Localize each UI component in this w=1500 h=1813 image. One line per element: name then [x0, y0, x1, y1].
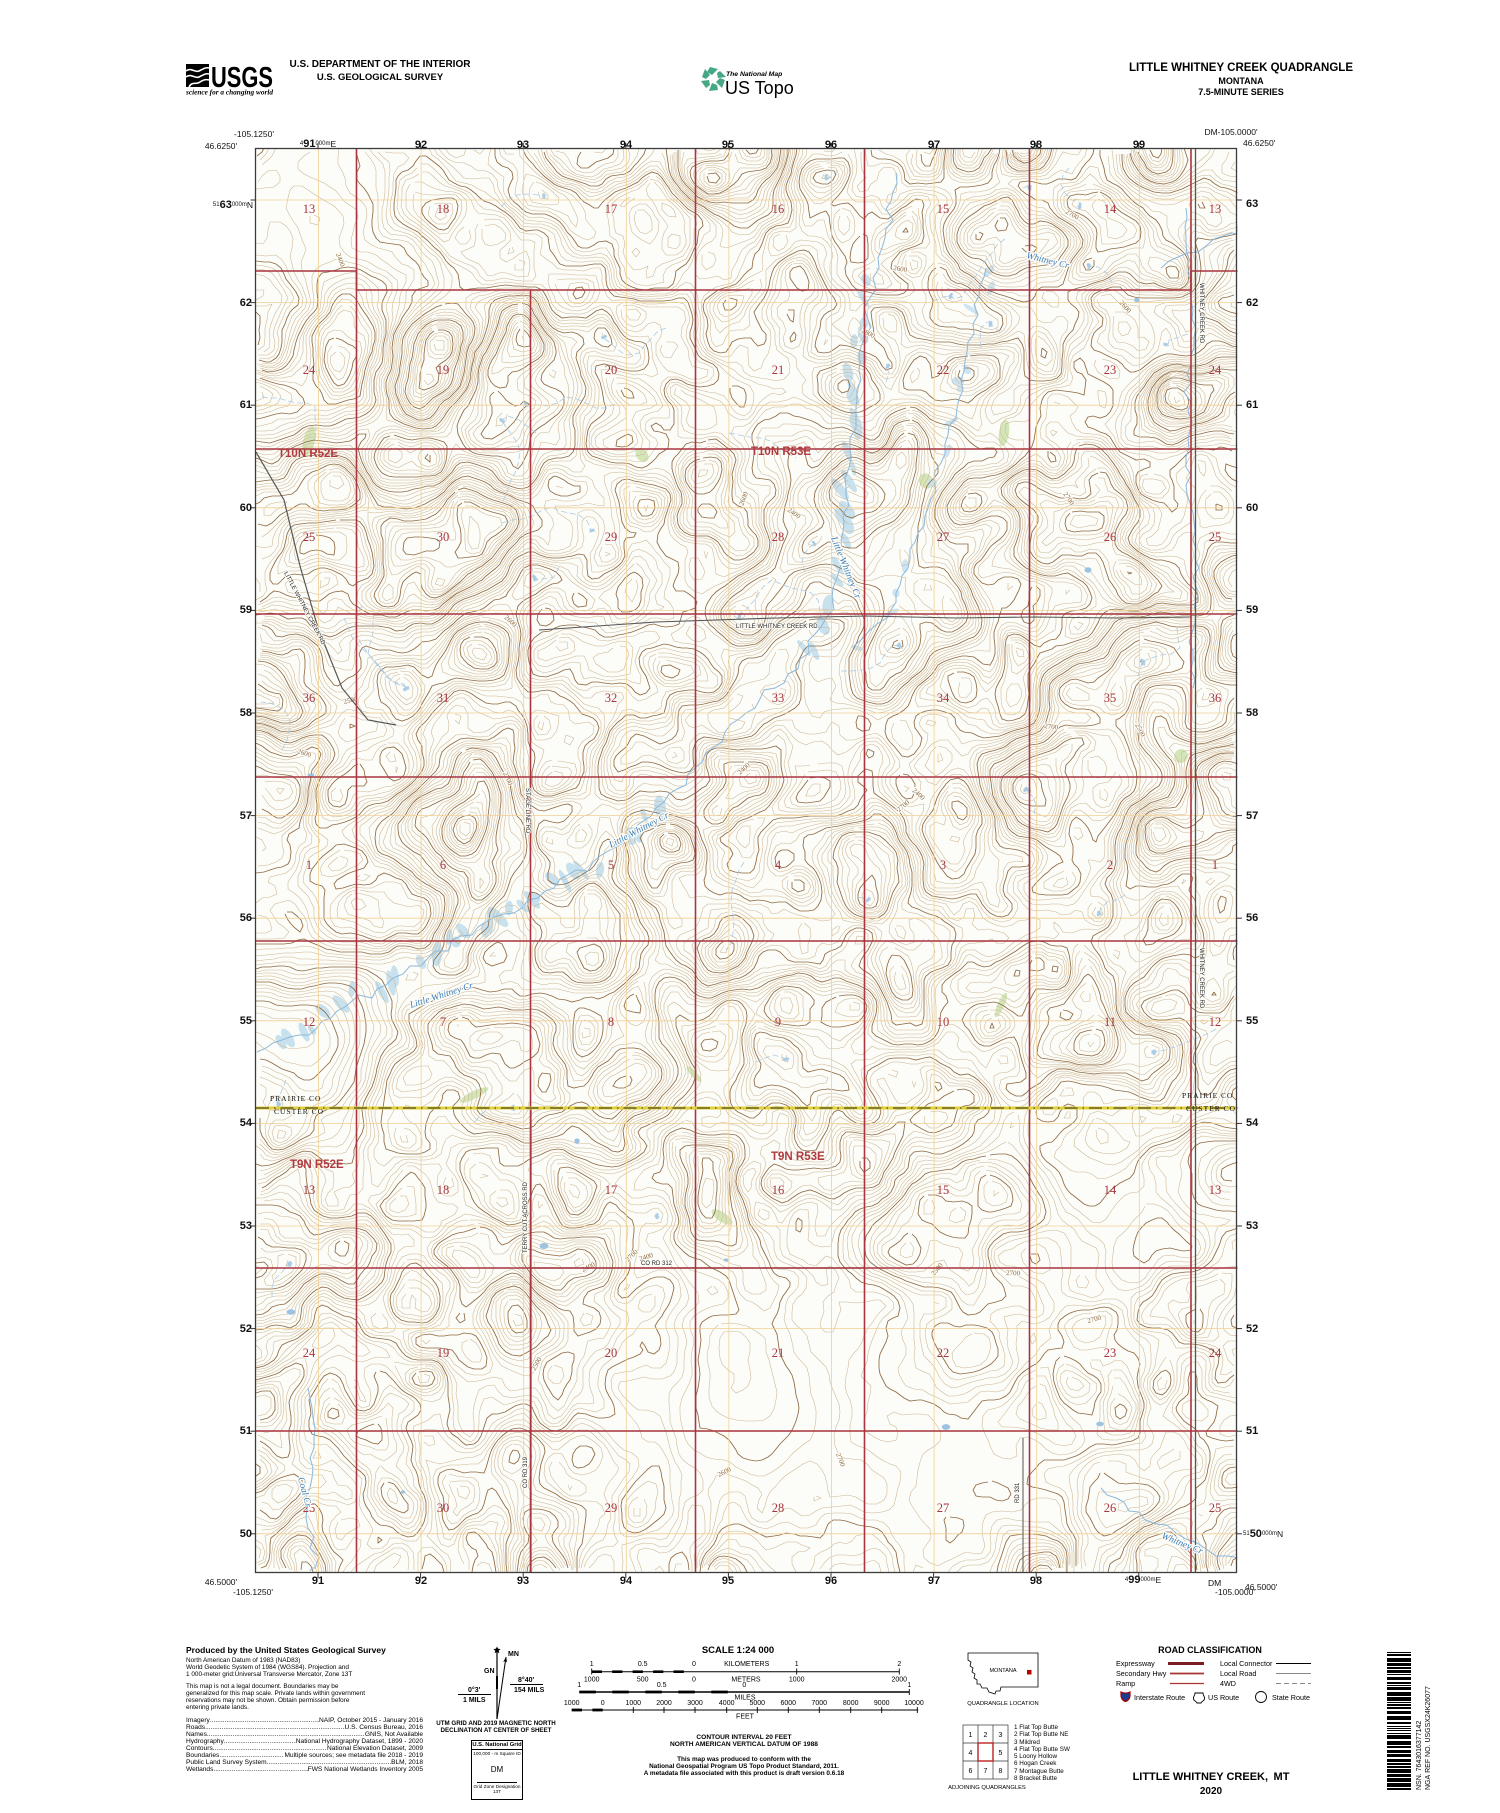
svg-text:500: 500	[637, 1677, 649, 1684]
svg-text:9000: 9000	[874, 1700, 890, 1707]
svg-text:4: 4	[969, 1750, 973, 1757]
svg-text:KILOMETERS: KILOMETERS	[724, 1661, 769, 1668]
svg-text:10000: 10000	[904, 1700, 924, 1707]
svg-text:3: 3	[999, 1732, 1003, 1739]
svg-text:GN: GN	[484, 1668, 495, 1675]
svg-text:Local Connector: Local Connector	[1220, 1659, 1273, 1668]
svg-text:1: 1	[907, 1682, 911, 1689]
svg-text:1000: 1000	[626, 1700, 642, 1707]
svg-text:1 MILS: 1 MILS	[463, 1697, 486, 1704]
svg-text:Interstate Route: Interstate Route	[1134, 1693, 1185, 1702]
svg-text:NSN. 7643016377142: NSN. 7643016377142	[1416, 1721, 1423, 1790]
svg-text:0: 0	[692, 1677, 696, 1684]
svg-text:Ramp: Ramp	[1116, 1679, 1135, 1688]
svg-text:State Route: State Route	[1272, 1693, 1310, 1702]
svg-text:2000: 2000	[656, 1700, 672, 1707]
svg-text:Secondary Hwy: Secondary Hwy	[1116, 1669, 1167, 1678]
svg-text:4WD: 4WD	[1220, 1679, 1236, 1688]
svg-text:1: 1	[969, 1732, 973, 1739]
svg-text:8000: 8000	[843, 1700, 859, 1707]
svg-text:6000: 6000	[781, 1700, 797, 1707]
svg-text:0: 0	[692, 1661, 696, 1668]
svg-text:FEET: FEET	[736, 1714, 755, 1721]
svg-text:2000: 2000	[892, 1677, 908, 1684]
svg-text:1000: 1000	[789, 1677, 805, 1684]
svg-text:0°3': 0°3'	[468, 1686, 481, 1694]
svg-text:0: 0	[601, 1700, 605, 1707]
svg-text:8°40': 8°40'	[518, 1676, 534, 1684]
svg-text:0.5: 0.5	[657, 1682, 667, 1689]
svg-text:1: 1	[590, 1661, 594, 1668]
svg-text:1: 1	[795, 1661, 799, 1668]
svg-text:0: 0	[742, 1682, 746, 1689]
svg-text:5000: 5000	[750, 1700, 766, 1707]
svg-text:7000: 7000	[812, 1700, 828, 1707]
svg-text:3000: 3000	[687, 1700, 703, 1707]
svg-text:2: 2	[984, 1732, 988, 1739]
svg-text:154 MILS: 154 MILS	[514, 1687, 545, 1694]
svg-text:6: 6	[969, 1768, 973, 1775]
svg-text:5: 5	[999, 1750, 1003, 1757]
svg-text:1000: 1000	[564, 1700, 580, 1707]
svg-text:NGA REF NO. USGSX24K26077: NGA REF NO. USGSX24K26077	[1425, 1686, 1432, 1790]
svg-text:0.5: 0.5	[638, 1661, 648, 1668]
svg-text:2: 2	[897, 1661, 901, 1668]
svg-text:Expressway: Expressway	[1116, 1659, 1155, 1668]
svg-text:1000: 1000	[584, 1677, 600, 1684]
svg-text:8: 8	[999, 1768, 1003, 1775]
svg-text:Local Road: Local Road	[1220, 1669, 1256, 1678]
svg-text:MONTANA: MONTANA	[989, 1668, 1016, 1674]
svg-text:7: 7	[984, 1768, 988, 1775]
svg-text:US Route: US Route	[1208, 1693, 1239, 1702]
svg-text:1: 1	[577, 1682, 581, 1689]
svg-text:MN: MN	[508, 1651, 519, 1658]
svg-text:4000: 4000	[719, 1700, 735, 1707]
